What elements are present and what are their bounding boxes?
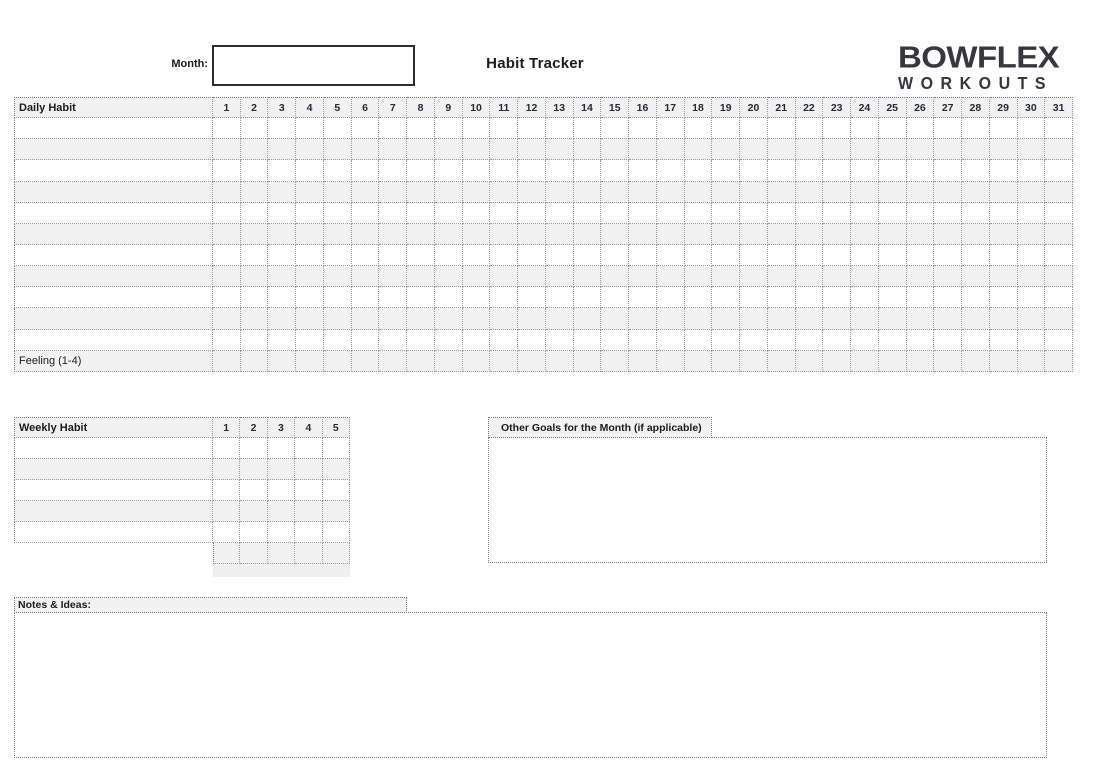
feeling-day-cell[interactable]: [268, 351, 296, 372]
day-cell[interactable]: [490, 330, 518, 351]
day-cell[interactable]: [657, 203, 685, 224]
day-cell[interactable]: [268, 459, 295, 480]
day-cell[interactable]: [768, 266, 796, 287]
day-cell[interactable]: [879, 118, 907, 139]
day-cell[interactable]: [379, 245, 407, 266]
day-cell[interactable]: [518, 308, 546, 329]
day-cell[interactable]: [851, 308, 879, 329]
day-cell[interactable]: [962, 182, 990, 203]
day-cell[interactable]: [879, 160, 907, 181]
day-cell[interactable]: [990, 139, 1018, 160]
day-cell[interactable]: [213, 245, 241, 266]
day-cell[interactable]: [407, 330, 435, 351]
day-cell[interactable]: [962, 118, 990, 139]
day-cell[interactable]: [352, 224, 380, 245]
day-cell[interactable]: [463, 160, 491, 181]
day-cell[interactable]: [796, 139, 824, 160]
habit-name-cell[interactable]: [14, 139, 213, 160]
day-cell[interactable]: [601, 266, 629, 287]
day-cell[interactable]: [268, 522, 295, 543]
day-cell[interactable]: [546, 308, 574, 329]
day-cell[interactable]: [685, 139, 713, 160]
day-cell[interactable]: [213, 139, 241, 160]
habit-name-cell[interactable]: [14, 287, 213, 308]
day-cell[interactable]: [601, 245, 629, 266]
day-cell[interactable]: [962, 245, 990, 266]
day-cell[interactable]: [629, 182, 657, 203]
day-cell[interactable]: [879, 182, 907, 203]
feeling-day-cell[interactable]: [768, 351, 796, 372]
day-cell[interactable]: [546, 182, 574, 203]
day-cell[interactable]: [241, 160, 269, 181]
day-cell[interactable]: [295, 459, 322, 480]
day-cell[interactable]: [796, 182, 824, 203]
day-cell[interactable]: [296, 160, 324, 181]
day-cell[interactable]: [268, 224, 296, 245]
feeling-day-cell[interactable]: [907, 351, 935, 372]
day-cell[interactable]: [324, 224, 352, 245]
feeling-day-cell[interactable]: [851, 351, 879, 372]
feeling-day-cell[interactable]: [823, 351, 851, 372]
day-cell[interactable]: [823, 118, 851, 139]
feeling-day-cell[interactable]: [629, 351, 657, 372]
day-cell[interactable]: [435, 287, 463, 308]
day-cell[interactable]: [629, 308, 657, 329]
feeling-day-cell[interactable]: [1018, 351, 1046, 372]
day-cell[interactable]: [823, 330, 851, 351]
day-cell[interactable]: [323, 522, 350, 543]
day-cell[interactable]: [435, 139, 463, 160]
day-cell[interactable]: [990, 182, 1018, 203]
day-cell[interactable]: [324, 308, 352, 329]
day-cell[interactable]: [490, 139, 518, 160]
day-cell[interactable]: [352, 330, 380, 351]
day-cell[interactable]: [518, 266, 546, 287]
day-cell[interactable]: [268, 287, 296, 308]
day-cell[interactable]: [435, 330, 463, 351]
day-cell[interactable]: [962, 139, 990, 160]
day-cell[interactable]: [823, 182, 851, 203]
day-cell[interactable]: [657, 308, 685, 329]
day-cell[interactable]: [435, 308, 463, 329]
day-cell[interactable]: [574, 160, 602, 181]
day-cell[interactable]: [574, 203, 602, 224]
day-cell[interactable]: [518, 287, 546, 308]
day-cell[interactable]: [796, 266, 824, 287]
feeling-day-cell[interactable]: [934, 351, 962, 372]
day-cell[interactable]: [851, 330, 879, 351]
day-cell[interactable]: [712, 330, 740, 351]
day-cell[interactable]: [324, 118, 352, 139]
day-cell[interactable]: [823, 245, 851, 266]
day-cell[interactable]: [740, 266, 768, 287]
day-cell[interactable]: [296, 118, 324, 139]
other-goals-box[interactable]: [488, 437, 1047, 563]
day-cell[interactable]: [685, 160, 713, 181]
day-cell[interactable]: [934, 308, 962, 329]
feeling-day-cell[interactable]: [518, 351, 546, 372]
day-cell[interactable]: [823, 203, 851, 224]
feeling-day-cell[interactable]: [546, 351, 574, 372]
day-cell[interactable]: [574, 330, 602, 351]
day-cell[interactable]: [685, 182, 713, 203]
day-cell[interactable]: [463, 139, 491, 160]
day-cell[interactable]: [1045, 245, 1073, 266]
day-cell[interactable]: [546, 118, 574, 139]
day-cell[interactable]: [990, 203, 1018, 224]
day-cell[interactable]: [907, 287, 935, 308]
day-cell[interactable]: [268, 182, 296, 203]
day-cell[interactable]: [407, 224, 435, 245]
day-cell[interactable]: [490, 118, 518, 139]
day-cell[interactable]: [241, 139, 269, 160]
day-cell[interactable]: [352, 245, 380, 266]
day-cell[interactable]: [435, 224, 463, 245]
day-cell[interactable]: [601, 308, 629, 329]
day-cell[interactable]: [435, 203, 463, 224]
day-cell[interactable]: [907, 308, 935, 329]
day-cell[interactable]: [823, 266, 851, 287]
day-cell[interactable]: [629, 139, 657, 160]
day-cell[interactable]: [629, 287, 657, 308]
day-cell[interactable]: [268, 245, 296, 266]
day-cell[interactable]: [241, 266, 269, 287]
day-cell[interactable]: [907, 139, 935, 160]
feeling-day-cell[interactable]: [990, 351, 1018, 372]
day-cell[interactable]: [685, 330, 713, 351]
day-cell[interactable]: [240, 501, 267, 522]
day-cell[interactable]: [629, 118, 657, 139]
day-cell[interactable]: [601, 182, 629, 203]
day-cell[interactable]: [934, 330, 962, 351]
day-cell[interactable]: [796, 245, 824, 266]
day-cell[interactable]: [990, 308, 1018, 329]
day-cell[interactable]: [990, 245, 1018, 266]
day-cell[interactable]: [796, 203, 824, 224]
day-cell[interactable]: [823, 287, 851, 308]
habit-name-cell[interactable]: [14, 245, 213, 266]
day-cell[interactable]: [601, 224, 629, 245]
habit-name-cell[interactable]: [14, 459, 213, 480]
day-cell[interactable]: [879, 308, 907, 329]
day-cell[interactable]: [823, 139, 851, 160]
day-cell[interactable]: [463, 287, 491, 308]
feeling-day-cell[interactable]: [1045, 351, 1073, 372]
notes-box[interactable]: [14, 612, 1047, 758]
feeling-day-cell[interactable]: [685, 351, 713, 372]
day-cell[interactable]: [851, 266, 879, 287]
day-cell[interactable]: [324, 330, 352, 351]
day-cell[interactable]: [1045, 330, 1073, 351]
feeling-day-cell[interactable]: [324, 351, 352, 372]
day-cell[interactable]: [712, 139, 740, 160]
day-cell[interactable]: [685, 224, 713, 245]
day-cell[interactable]: [740, 308, 768, 329]
day-cell[interactable]: [435, 245, 463, 266]
feeling-day-cell[interactable]: [490, 351, 518, 372]
day-cell[interactable]: [518, 203, 546, 224]
day-cell[interactable]: [629, 266, 657, 287]
feeling-day-cell[interactable]: [962, 351, 990, 372]
day-cell[interactable]: [1045, 139, 1073, 160]
day-cell[interactable]: [990, 287, 1018, 308]
day-cell[interactable]: [379, 330, 407, 351]
day-cell[interactable]: [518, 118, 546, 139]
day-cell[interactable]: [768, 182, 796, 203]
day-cell[interactable]: [296, 308, 324, 329]
day-cell[interactable]: [1018, 330, 1046, 351]
day-cell[interactable]: [601, 330, 629, 351]
day-cell[interactable]: [934, 118, 962, 139]
weekly-extra-cell[interactable]: [240, 543, 267, 564]
day-cell[interactable]: [768, 139, 796, 160]
weekly-extra-cell[interactable]: [295, 543, 322, 564]
day-cell[interactable]: [213, 203, 241, 224]
day-cell[interactable]: [1018, 160, 1046, 181]
day-cell[interactable]: [740, 182, 768, 203]
habit-name-cell[interactable]: [14, 224, 213, 245]
day-cell[interactable]: [268, 480, 295, 501]
day-cell[interactable]: [601, 160, 629, 181]
day-cell[interactable]: [990, 266, 1018, 287]
day-cell[interactable]: [490, 287, 518, 308]
day-cell[interactable]: [379, 203, 407, 224]
day-cell[interactable]: [657, 245, 685, 266]
day-cell[interactable]: [740, 139, 768, 160]
day-cell[interactable]: [934, 266, 962, 287]
day-cell[interactable]: [962, 266, 990, 287]
day-cell[interactable]: [629, 224, 657, 245]
day-cell[interactable]: [241, 182, 269, 203]
day-cell[interactable]: [962, 287, 990, 308]
day-cell[interactable]: [268, 501, 295, 522]
day-cell[interactable]: [934, 160, 962, 181]
day-cell[interactable]: [213, 459, 240, 480]
day-cell[interactable]: [490, 182, 518, 203]
day-cell[interactable]: [796, 308, 824, 329]
day-cell[interactable]: [574, 182, 602, 203]
day-cell[interactable]: [685, 245, 713, 266]
day-cell[interactable]: [518, 330, 546, 351]
day-cell[interactable]: [435, 266, 463, 287]
day-cell[interactable]: [990, 118, 1018, 139]
day-cell[interactable]: [1045, 118, 1073, 139]
day-cell[interactable]: [657, 118, 685, 139]
day-cell[interactable]: [1018, 139, 1046, 160]
day-cell[interactable]: [352, 203, 380, 224]
day-cell[interactable]: [934, 139, 962, 160]
day-cell[interactable]: [962, 203, 990, 224]
day-cell[interactable]: [1018, 182, 1046, 203]
day-cell[interactable]: [851, 118, 879, 139]
day-cell[interactable]: [490, 224, 518, 245]
day-cell[interactable]: [490, 308, 518, 329]
day-cell[interactable]: [768, 308, 796, 329]
day-cell[interactable]: [296, 182, 324, 203]
day-cell[interactable]: [796, 118, 824, 139]
day-cell[interactable]: [213, 224, 241, 245]
day-cell[interactable]: [435, 160, 463, 181]
day-cell[interactable]: [685, 287, 713, 308]
day-cell[interactable]: [934, 224, 962, 245]
day-cell[interactable]: [213, 330, 241, 351]
day-cell[interactable]: [213, 438, 240, 459]
weekly-extra-cell[interactable]: [268, 543, 295, 564]
weekly-extra-cell[interactable]: [213, 543, 240, 564]
day-cell[interactable]: [546, 287, 574, 308]
day-cell[interactable]: [879, 139, 907, 160]
day-cell[interactable]: [740, 203, 768, 224]
habit-name-cell[interactable]: [14, 118, 213, 139]
day-cell[interactable]: [990, 224, 1018, 245]
day-cell[interactable]: [574, 287, 602, 308]
day-cell[interactable]: [796, 160, 824, 181]
day-cell[interactable]: [823, 224, 851, 245]
day-cell[interactable]: [518, 182, 546, 203]
day-cell[interactable]: [352, 287, 380, 308]
day-cell[interactable]: [907, 266, 935, 287]
day-cell[interactable]: [712, 245, 740, 266]
habit-name-cell[interactable]: [14, 308, 213, 329]
day-cell[interactable]: [768, 160, 796, 181]
day-cell[interactable]: [463, 266, 491, 287]
day-cell[interactable]: [907, 182, 935, 203]
day-cell[interactable]: [240, 438, 267, 459]
day-cell[interactable]: [241, 287, 269, 308]
day-cell[interactable]: [546, 139, 574, 160]
day-cell[interactable]: [379, 308, 407, 329]
day-cell[interactable]: [879, 287, 907, 308]
day-cell[interactable]: [490, 245, 518, 266]
day-cell[interactable]: [546, 160, 574, 181]
day-cell[interactable]: [296, 266, 324, 287]
day-cell[interactable]: [851, 245, 879, 266]
day-cell[interactable]: [907, 330, 935, 351]
day-cell[interactable]: [851, 224, 879, 245]
day-cell[interactable]: [213, 501, 240, 522]
day-cell[interactable]: [490, 266, 518, 287]
day-cell[interactable]: [1045, 308, 1073, 329]
habit-name-cell[interactable]: [14, 203, 213, 224]
day-cell[interactable]: [1045, 160, 1073, 181]
day-cell[interactable]: [907, 118, 935, 139]
day-cell[interactable]: [601, 287, 629, 308]
day-cell[interactable]: [740, 118, 768, 139]
day-cell[interactable]: [296, 245, 324, 266]
day-cell[interactable]: [574, 118, 602, 139]
day-cell[interactable]: [379, 224, 407, 245]
day-cell[interactable]: [241, 118, 269, 139]
day-cell[interactable]: [962, 330, 990, 351]
day-cell[interactable]: [1018, 308, 1046, 329]
day-cell[interactable]: [740, 287, 768, 308]
day-cell[interactable]: [435, 118, 463, 139]
day-cell[interactable]: [407, 245, 435, 266]
day-cell[interactable]: [324, 266, 352, 287]
day-cell[interactable]: [685, 266, 713, 287]
day-cell[interactable]: [907, 245, 935, 266]
habit-name-cell[interactable]: [14, 522, 213, 543]
day-cell[interactable]: [518, 160, 546, 181]
day-cell[interactable]: [712, 308, 740, 329]
day-cell[interactable]: [352, 266, 380, 287]
day-cell[interactable]: [740, 245, 768, 266]
day-cell[interactable]: [768, 203, 796, 224]
day-cell[interactable]: [463, 308, 491, 329]
day-cell[interactable]: [241, 203, 269, 224]
day-cell[interactable]: [268, 203, 296, 224]
day-cell[interactable]: [657, 139, 685, 160]
feeling-day-cell[interactable]: [241, 351, 269, 372]
day-cell[interactable]: [768, 287, 796, 308]
day-cell[interactable]: [379, 118, 407, 139]
day-cell[interactable]: [1018, 203, 1046, 224]
habit-name-cell[interactable]: [14, 501, 213, 522]
feeling-day-cell[interactable]: [407, 351, 435, 372]
day-cell[interactable]: [518, 245, 546, 266]
day-cell[interactable]: [213, 287, 241, 308]
day-cell[interactable]: [962, 160, 990, 181]
day-cell[interactable]: [685, 308, 713, 329]
day-cell[interactable]: [324, 203, 352, 224]
habit-name-cell[interactable]: [14, 182, 213, 203]
day-cell[interactable]: [240, 459, 267, 480]
day-cell[interactable]: [490, 160, 518, 181]
feeling-day-cell[interactable]: [879, 351, 907, 372]
day-cell[interactable]: [268, 308, 296, 329]
day-cell[interactable]: [213, 160, 241, 181]
day-cell[interactable]: [962, 224, 990, 245]
day-cell[interactable]: [1045, 182, 1073, 203]
habit-name-cell[interactable]: [14, 330, 213, 351]
day-cell[interactable]: [990, 330, 1018, 351]
day-cell[interactable]: [407, 203, 435, 224]
day-cell[interactable]: [712, 203, 740, 224]
day-cell[interactable]: [768, 330, 796, 351]
feeling-day-cell[interactable]: [712, 351, 740, 372]
habit-name-cell[interactable]: [14, 160, 213, 181]
day-cell[interactable]: [407, 266, 435, 287]
day-cell[interactable]: [352, 160, 380, 181]
day-cell[interactable]: [712, 287, 740, 308]
day-cell[interactable]: [324, 160, 352, 181]
day-cell[interactable]: [296, 139, 324, 160]
day-cell[interactable]: [240, 522, 267, 543]
day-cell[interactable]: [463, 182, 491, 203]
day-cell[interactable]: [990, 160, 1018, 181]
day-cell[interactable]: [324, 139, 352, 160]
day-cell[interactable]: [657, 160, 685, 181]
day-cell[interactable]: [1045, 203, 1073, 224]
day-cell[interactable]: [685, 118, 713, 139]
day-cell[interactable]: [879, 245, 907, 266]
day-cell[interactable]: [296, 224, 324, 245]
day-cell[interactable]: [379, 139, 407, 160]
day-cell[interactable]: [296, 287, 324, 308]
day-cell[interactable]: [879, 266, 907, 287]
day-cell[interactable]: [546, 224, 574, 245]
day-cell[interactable]: [934, 287, 962, 308]
day-cell[interactable]: [407, 182, 435, 203]
day-cell[interactable]: [629, 330, 657, 351]
day-cell[interactable]: [934, 182, 962, 203]
day-cell[interactable]: [295, 501, 322, 522]
day-cell[interactable]: [407, 287, 435, 308]
day-cell[interactable]: [241, 308, 269, 329]
day-cell[interactable]: [934, 245, 962, 266]
day-cell[interactable]: [574, 266, 602, 287]
day-cell[interactable]: [712, 160, 740, 181]
